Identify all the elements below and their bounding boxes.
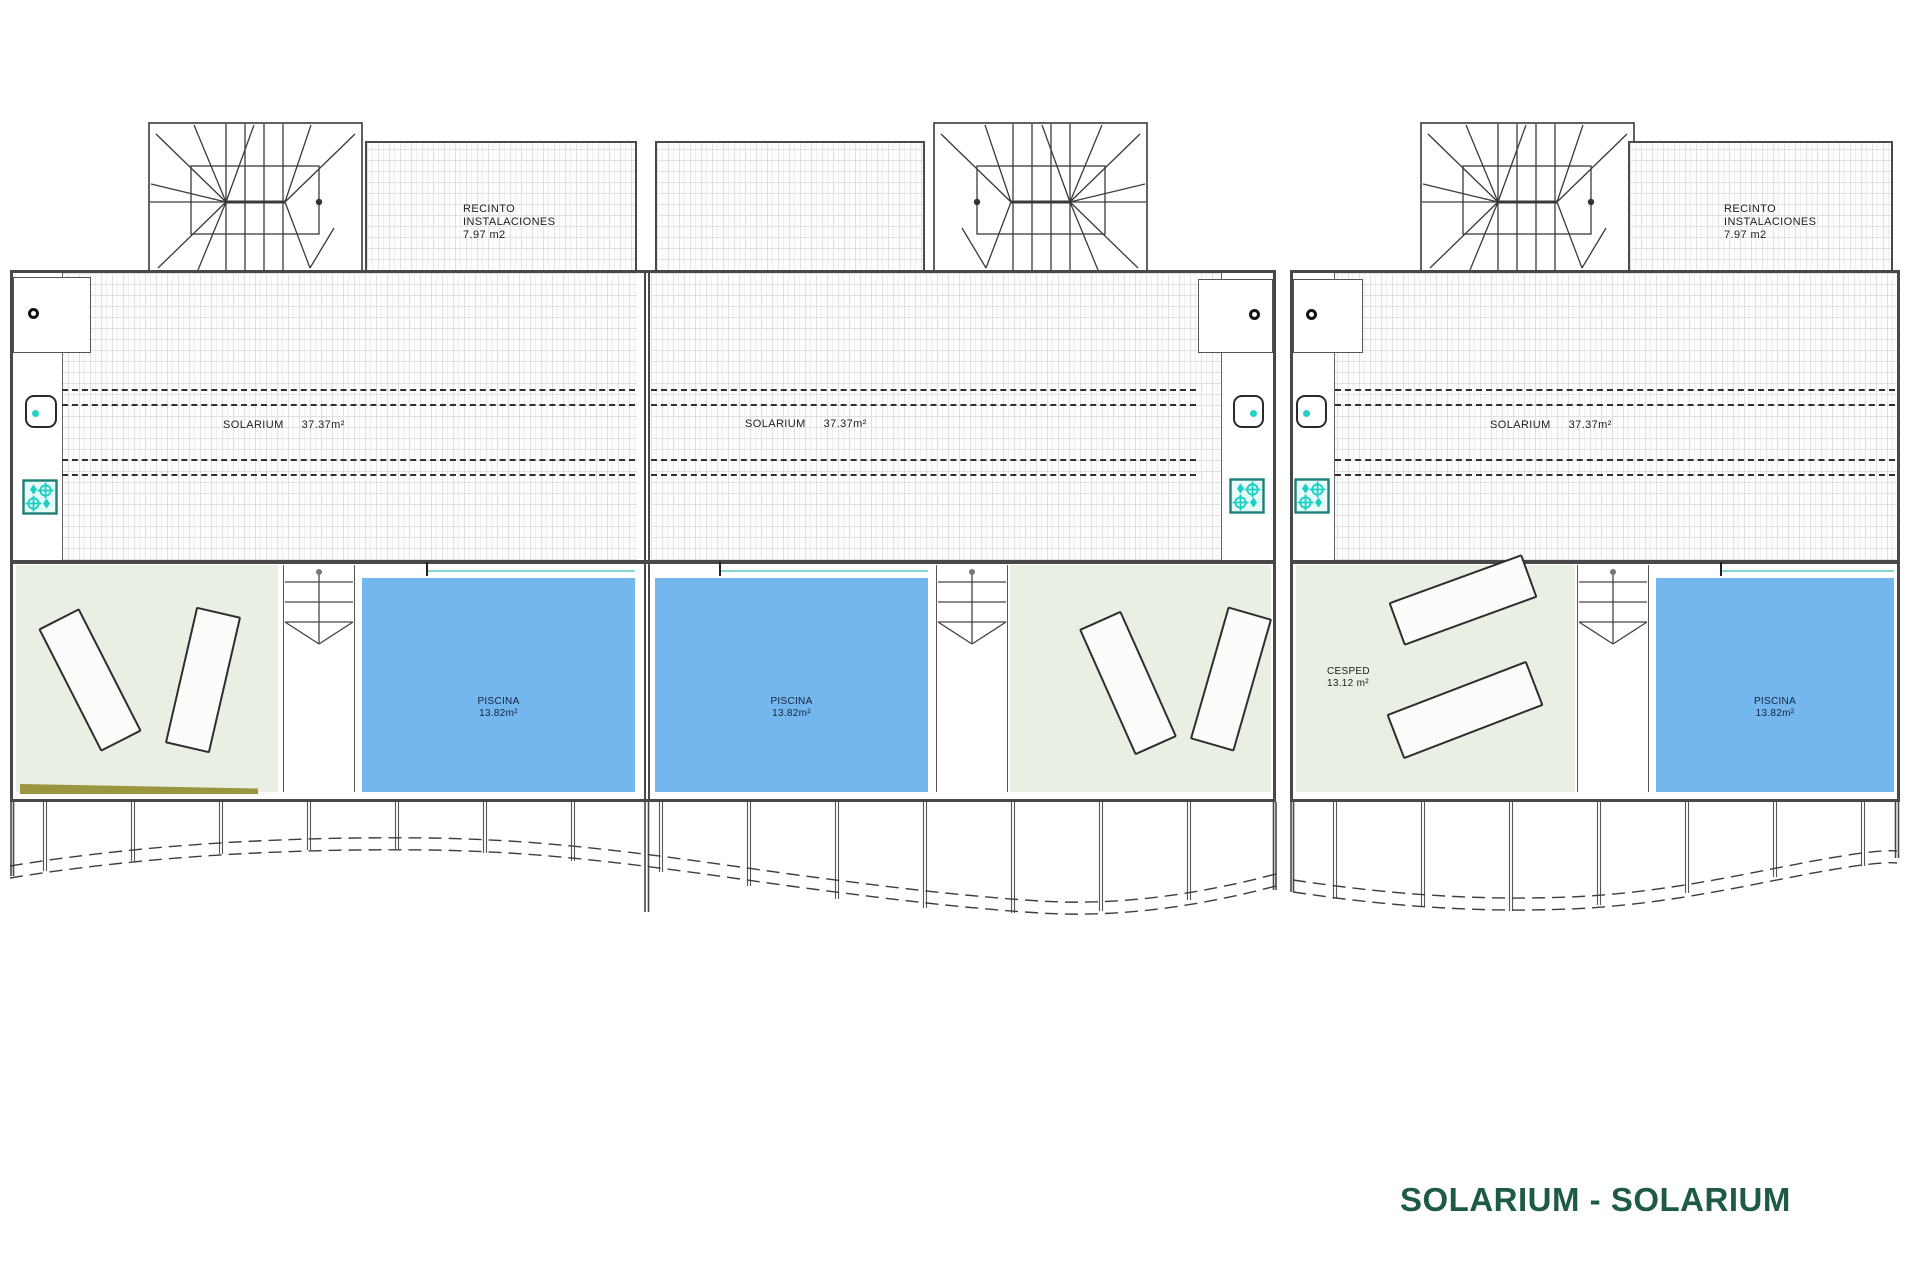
tap-dot-icon: [1250, 410, 1257, 417]
drain-icon: [28, 308, 39, 319]
dashed-line: [651, 389, 1196, 391]
recinto-2-label: RECINTO INSTALACIONES 7.97 m2: [1724, 203, 1816, 242]
sink-icon: [25, 395, 57, 428]
counter-box-3: [1293, 279, 1363, 353]
counter-box-1: [13, 277, 91, 353]
pool-1-label: PISCINA 13.82m²: [362, 696, 635, 720]
room-name: PISCINA: [362, 696, 635, 708]
stair-block-2: [933, 122, 1148, 274]
fence-and-slope: [0, 798, 1920, 933]
drain-icon: [1249, 309, 1260, 320]
room-name: PISCINA: [655, 696, 928, 708]
solarium-bottom-wall-left: [13, 560, 1273, 564]
dashed-line: [62, 389, 635, 391]
dashed-line: [651, 459, 1196, 461]
stair-block-1: [148, 122, 363, 274]
room-area: 37.37m²: [1569, 419, 1612, 431]
stair-down-glyph: [284, 565, 354, 655]
stairwell-1: [283, 565, 355, 792]
lawn-1: [16, 565, 278, 792]
stove-icon: [1294, 478, 1330, 514]
party-wall: [644, 273, 650, 799]
stair-down-glyph: [1578, 565, 1648, 655]
dashed-line: [62, 404, 635, 406]
pool-edge-line: [426, 570, 635, 572]
solarium-label-2: SOLARIUM 37.37m²: [745, 418, 867, 430]
room-area: 13.12 m²: [1327, 678, 1370, 690]
solarium-floor-2: [651, 273, 1273, 560]
room-name: SOLARIUM: [1490, 419, 1551, 431]
recinto-1-label: RECINTO INSTALACIONES 7.97 m2: [463, 203, 555, 242]
room-area: 13.82m²: [655, 708, 928, 720]
stairwell-3: [1577, 565, 1649, 792]
stair-down-glyph: [937, 565, 1007, 655]
dashed-line: [1335, 459, 1895, 461]
pool-edge-line: [719, 570, 928, 572]
sheet-title: SOLARIUM - SOLARIUM: [1400, 1181, 1791, 1219]
dashed-line: [62, 474, 635, 476]
solarium-label-3: SOLARIUM 37.37m²: [1490, 419, 1612, 431]
dashed-line: [651, 474, 1196, 476]
pool-3-label: PISCINA 13.82m²: [1656, 696, 1894, 720]
room-area: 37.37m²: [824, 418, 867, 430]
solarium-bottom-wall-right: [1293, 560, 1897, 564]
sink-icon: [1233, 395, 1264, 428]
recinto-instalaciones-1: RECINTO INSTALACIONES 7.97 m2: [365, 141, 637, 273]
tap-dot-icon: [1303, 410, 1310, 417]
room-name: CESPED: [1327, 666, 1370, 678]
stair-block-3: [1420, 122, 1635, 274]
solarium-label-1: SOLARIUM 37.37m²: [223, 419, 345, 431]
stove-icon: [1229, 478, 1265, 514]
counter-box-2: [1198, 279, 1273, 353]
dashed-line: [1335, 474, 1895, 476]
pool-1: PISCINA 13.82m²: [362, 578, 635, 792]
pool-3: PISCINA 13.82m²: [1656, 578, 1894, 792]
pool-edge-tick: [1720, 562, 1722, 576]
slope-wave-lines: [10, 838, 1897, 914]
dashed-line: [62, 459, 635, 461]
room-name: SOLARIUM: [745, 418, 806, 430]
room-area: 13.82m²: [1656, 708, 1894, 720]
recinto-instalaciones-2: RECINTO INSTALACIONES 7.97 m2: [1628, 141, 1893, 273]
sink-icon: [1296, 395, 1327, 428]
dashed-line: [1335, 389, 1895, 391]
room-name: SOLARIUM: [223, 419, 284, 431]
floor-plan-canvas: RECINTO INSTALACIONES 7.97 m2: [0, 0, 1920, 1280]
fence-posts-left: [44, 802, 1191, 913]
pool-edge-line: [1720, 570, 1894, 572]
room-area: 13.82m²: [362, 708, 635, 720]
solarium-floor-1: [13, 273, 637, 560]
stove-icon: [22, 479, 58, 515]
drain-icon: [1306, 309, 1317, 320]
pool-2-label: PISCINA 13.82m²: [655, 696, 928, 720]
room-area: 37.37m²: [302, 419, 345, 431]
dashed-line: [651, 404, 1196, 406]
solarium-floor-3: [1293, 273, 1897, 560]
roof-enclosure-2: [655, 141, 925, 273]
cesped-label: CESPED 13.12 m²: [1327, 666, 1370, 690]
tap-dot-icon: [32, 410, 39, 417]
room-name: PISCINA: [1656, 696, 1894, 708]
pool-edge-tick: [426, 562, 428, 576]
stairwell-2: [936, 565, 1008, 792]
pool-edge-tick: [719, 562, 721, 576]
wall-continuations: [11, 802, 1899, 912]
dashed-line: [1335, 404, 1895, 406]
pool-2: PISCINA 13.82m²: [655, 578, 928, 792]
